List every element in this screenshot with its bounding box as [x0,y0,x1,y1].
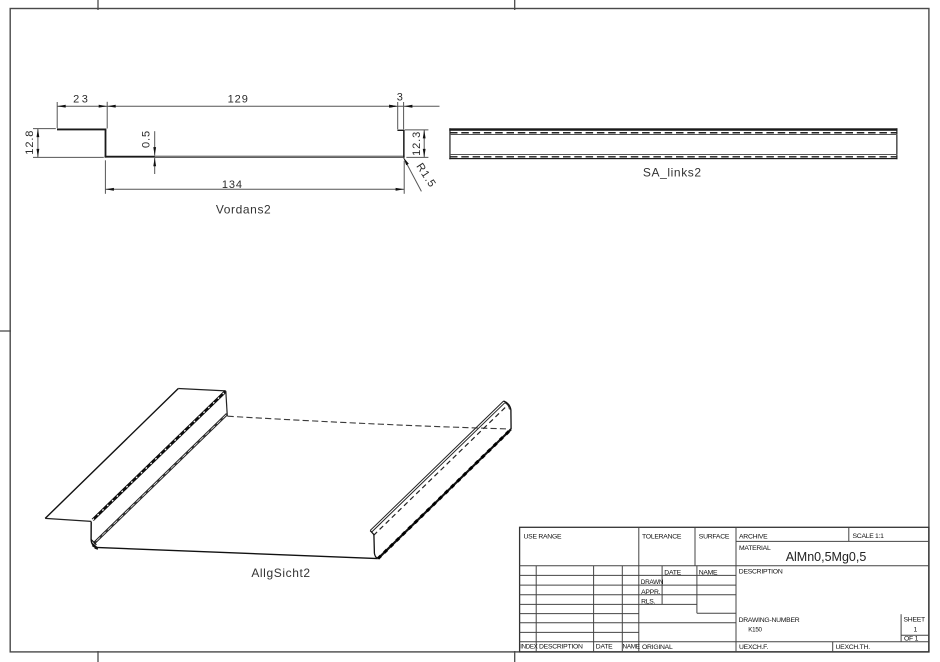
svg-text:3: 3 [397,91,404,103]
svg-text:APPR.: APPR. [641,589,661,596]
svg-text:RLS.: RLS. [641,599,655,606]
svg-text:OF 1: OF 1 [904,636,919,643]
svg-text:SA_links2: SA_links2 [643,166,702,180]
svg-text:UEXCH.F.: UEXCH.F. [739,644,768,651]
svg-text:ARCHIVE: ARCHIVE [739,533,768,540]
svg-text:TOLERANCE: TOLERANCE [642,534,682,541]
svg-text:23: 23 [73,93,90,105]
svg-text:12.3: 12.3 [411,131,423,156]
svg-text:DRAWING-NUMBER: DRAWING-NUMBER [739,617,800,624]
svg-text:ORIGINAL: ORIGINAL [642,644,673,651]
svg-text:12.8: 12.8 [24,130,36,155]
svg-text:SHEET: SHEET [904,617,926,624]
svg-text:DATE: DATE [664,570,681,577]
svg-text:DRAWN: DRAWN [641,579,664,586]
svg-text:NAME: NAME [699,570,718,577]
svg-text:USE RANGE: USE RANGE [524,534,563,541]
svg-text:1: 1 [914,627,918,634]
svg-text:Vordans2: Vordans2 [216,203,272,217]
svg-text:0.5: 0.5 [141,130,153,148]
svg-text:SURFACE: SURFACE [699,534,730,541]
svg-text:DATE: DATE [596,644,613,651]
svg-text:MATERIAL: MATERIAL [739,545,771,552]
svg-text:AllgSicht2: AllgSicht2 [251,566,310,580]
svg-text:DESCRIPTION: DESCRIPTION [739,569,783,576]
svg-text:UEXCH.TH.: UEXCH.TH. [836,644,871,651]
svg-text:1:1: 1:1 [875,533,884,540]
svg-text:129: 129 [228,94,249,106]
svg-text:134: 134 [222,179,243,191]
svg-text:SCALE: SCALE [853,533,875,540]
svg-text:AlMn0,5Mg0,5: AlMn0,5Mg0,5 [786,550,867,564]
svg-text:DESCRIPTION: DESCRIPTION [539,644,583,651]
svg-text:K150: K150 [748,627,762,634]
svg-text:NAME: NAME [623,644,640,651]
svg-text:INDEX: INDEX [520,644,537,651]
